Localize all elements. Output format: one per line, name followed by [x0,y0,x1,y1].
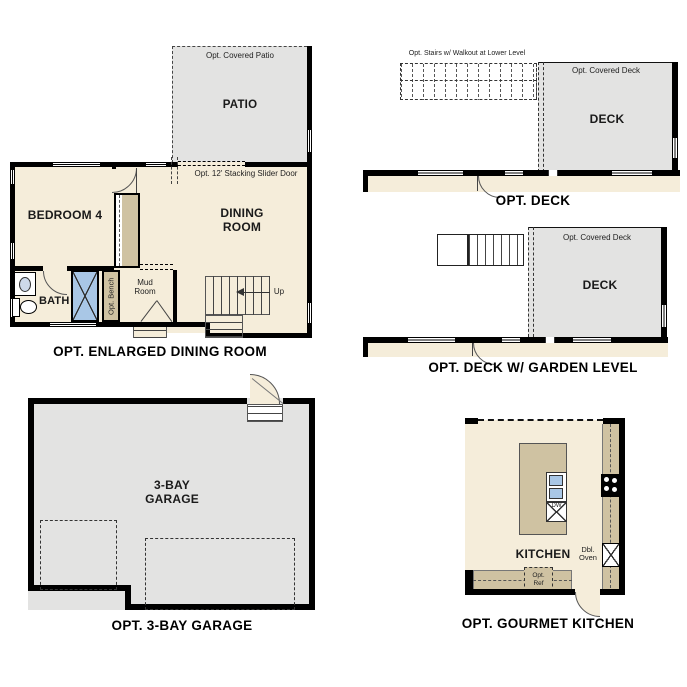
kitchen-top-wall [465,418,478,424]
floor-plan-options-sheet: Opt. Covered Patio PATIO Opt. 12' Stacki… [0,0,687,687]
dishwasher-label: DW [546,503,567,510]
kitchen-label: KITCHEN [503,547,583,561]
opt-ref-label: Opt. Ref [529,572,549,586]
double-oven [602,543,620,567]
kitchen-bottom-wall [600,589,625,595]
cooktop [601,474,620,497]
sink-basin [549,475,563,486]
burner-icon [604,486,609,491]
kitchen-bottom-wall [465,589,575,595]
sink-basin [549,488,563,499]
counter-dash [610,424,611,593]
counter-dash [473,580,572,581]
burner-icon [612,487,617,492]
plan5-title: OPT. GOURMET KITCHEN [438,616,658,631]
kitchen-top-dash [478,419,603,422]
burner-icon [612,478,617,483]
plan-gourmet-kitchen: Dbl. Oven DW Opt. Ref KITCHEN OPT. GOURM… [0,0,687,687]
kitchen-right-wall [619,418,625,595]
burner-icon [604,477,609,482]
